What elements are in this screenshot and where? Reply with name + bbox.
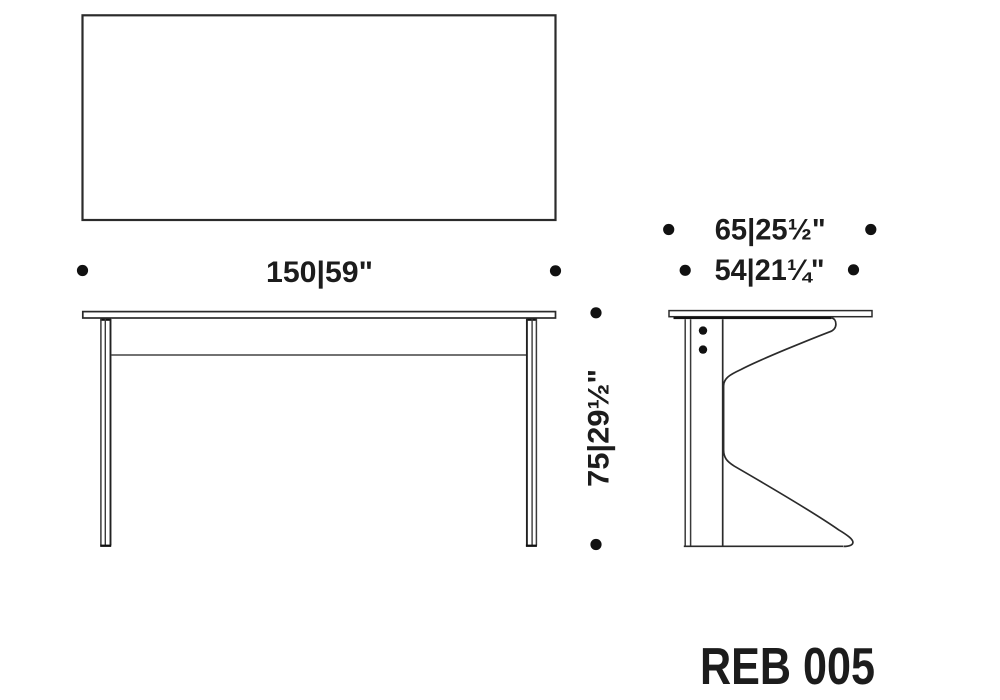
svg-text:REB 005: REB 005 <box>700 637 875 695</box>
svg-text:54|21¼": 54|21¼" <box>715 254 825 287</box>
svg-text:65|25½": 65|25½" <box>715 214 826 247</box>
svg-text:150|59": 150|59" <box>266 256 373 289</box>
svg-text:75|29½": 75|29½" <box>583 369 616 487</box>
